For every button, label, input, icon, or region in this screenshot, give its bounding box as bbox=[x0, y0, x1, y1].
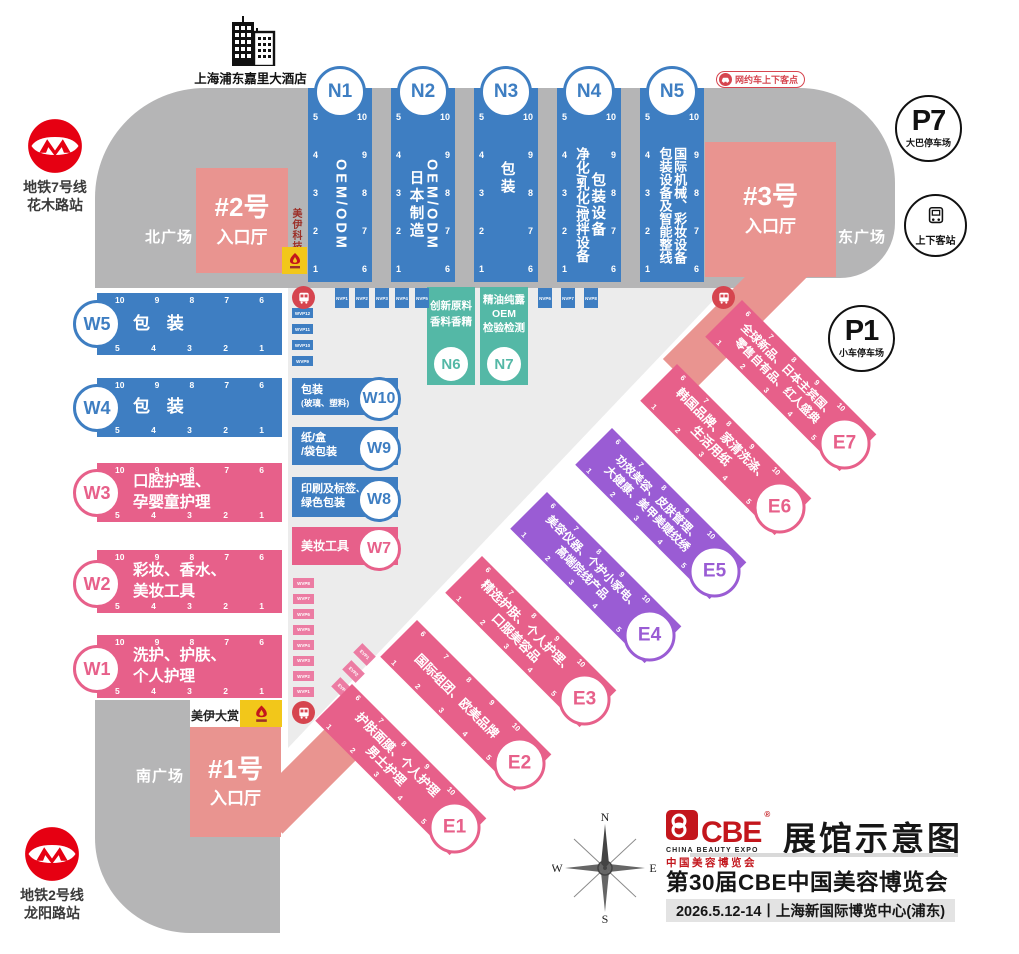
shuttle-stop: WVP9 bbox=[292, 356, 313, 366]
hall-W1-badge: W1 bbox=[73, 645, 121, 693]
bay-number: 7 bbox=[224, 380, 229, 390]
bay-number: 1 bbox=[259, 510, 264, 520]
shuttle-stop: NVP8 bbox=[584, 288, 598, 308]
cbe-wordmark: CBE bbox=[701, 820, 761, 846]
shuttle-stop: WVP5 bbox=[293, 625, 314, 635]
hall-W5: 109876 54321 包 装 bbox=[97, 293, 282, 355]
bay-number: 5 bbox=[115, 425, 120, 435]
entrance-hall-2: #2号 入口厅 bbox=[196, 168, 288, 273]
hall-E5-category: 功效美容、皮肤管理、 bbox=[601, 443, 713, 555]
hall-N6-badge: N6 bbox=[432, 345, 470, 383]
south-square-label: 南广场 bbox=[136, 765, 184, 786]
hall-E1-category: 护肤面膜、个人护理 bbox=[341, 698, 454, 811]
entrance-hall-1: #1号 入口厅 bbox=[190, 727, 281, 837]
hall-E4-badge: E4 bbox=[624, 610, 676, 662]
bay-number: 6 bbox=[259, 552, 264, 562]
car-icon bbox=[719, 73, 732, 86]
meiyi-logo bbox=[240, 700, 282, 727]
shuttle-stop: NVP5 bbox=[415, 288, 429, 308]
hall-W9-badge: W9 bbox=[357, 427, 401, 471]
p1-label: 小车停车场 bbox=[839, 346, 884, 359]
entrance-1-label: 入口厅 bbox=[210, 784, 261, 809]
hall-N2-category: 日本制造 bbox=[407, 170, 422, 240]
hall-E7-badge: E7 bbox=[819, 418, 871, 470]
metro-line2-station: 地铁2号线 龙阳路站 bbox=[0, 826, 107, 922]
hall-W1: 109876 54321 洗护、护肤、 个人护理 bbox=[97, 635, 282, 698]
hotel-label: 上海浦东嘉里大酒店 bbox=[188, 68, 313, 87]
metro-line7-station: 地铁7号线 花木路站 bbox=[0, 118, 110, 214]
bay-number: 7 bbox=[224, 465, 229, 475]
parking-p1: P1 小车停车场 bbox=[828, 305, 895, 372]
hall-W10-category: (玻璃、塑料) bbox=[301, 398, 349, 409]
north-shuttle-stops: NVP1NVP2NVP3NVP4NVP5 bbox=[335, 288, 429, 308]
bay-number: 1 bbox=[259, 343, 264, 353]
hall-W3-badge: W3 bbox=[73, 469, 121, 517]
hall-W3-category: 口腔护理、 bbox=[133, 472, 211, 493]
rideshare-label: 网约车上下客点 bbox=[735, 73, 798, 86]
cbe-logo: CBE ® CHINA BEAUTY EXPO 中国美容博览会 bbox=[666, 810, 776, 870]
bay-number: 5 bbox=[562, 112, 567, 122]
bay-number: 10 bbox=[606, 112, 616, 122]
entrance-hall-3: #3号 入口厅 bbox=[705, 142, 836, 277]
hall-W4-category: 包 装 bbox=[133, 396, 190, 419]
hall-N2-category: OEM/ODM bbox=[424, 159, 439, 251]
bay-number: 5 bbox=[645, 112, 650, 122]
rideshare-dropoff-badge: 网约车上下客点 bbox=[716, 71, 805, 88]
shuttle-stop: NVP1 bbox=[335, 288, 349, 308]
hall-N1-category: OEM/ODM bbox=[332, 159, 347, 251]
shuttle-stop: NVP4 bbox=[395, 288, 409, 308]
hall-E7-category: 零售自有品、红人盛典 bbox=[720, 325, 832, 437]
shuttle-stop: WVP2 bbox=[293, 671, 314, 681]
hall-N5-category: 国际机械、彩妆设备 bbox=[673, 147, 687, 264]
bay-number: 6 bbox=[259, 380, 264, 390]
metro2-station-label: 龙阳路站 bbox=[24, 905, 80, 923]
shuttle-stop: NVP6 bbox=[538, 288, 552, 308]
shuttle-stop: WVP1 bbox=[293, 687, 314, 697]
venue-map: #2号 入口厅 #3号 入口厅 #1号 入口厅 北广场 东广场 南广场 bbox=[0, 0, 1019, 954]
shuttle-stop: NVP3 bbox=[375, 288, 389, 308]
bay-number: 10 bbox=[115, 637, 124, 647]
hall-N4-category: 净化/乳化/搅拌设备 bbox=[574, 147, 588, 263]
hall-W2-badge: W2 bbox=[73, 560, 121, 608]
bay-number: 1 bbox=[479, 264, 484, 274]
shuttle-stop: WVP3 bbox=[293, 656, 314, 666]
hall-N6-category: 香料香精 bbox=[427, 315, 475, 331]
hall-N7-category: 检验检测 bbox=[480, 321, 528, 335]
metro2-line-label: 地铁2号线 bbox=[20, 887, 84, 905]
west-shuttle-stops-lower: WVP8WVP7WVP6WVP5WVP4WVP3WVP2WVP1 bbox=[293, 578, 314, 697]
title-underline bbox=[690, 853, 958, 857]
hall-W4-badge: W4 bbox=[73, 384, 121, 432]
hall-W2-category: 彩妆、香水、 bbox=[133, 561, 226, 582]
bay-number: 10 bbox=[357, 112, 367, 122]
hall-N7-category: 精油纯露 bbox=[480, 293, 528, 307]
hall-N6: 创新原料 香料香精 N6 bbox=[427, 287, 475, 385]
metro-logo-icon bbox=[27, 118, 83, 179]
metro7-station-label: 花木路站 bbox=[27, 197, 83, 215]
p7-label: 大巴停车场 bbox=[906, 136, 951, 149]
entrance-3-number: #3号 bbox=[743, 182, 798, 212]
south-concourse-notch bbox=[95, 700, 190, 740]
bay-number: 5 bbox=[115, 686, 120, 696]
hall-W10-category: 包装 bbox=[301, 384, 349, 398]
bay-number: 8 bbox=[189, 380, 194, 390]
hall-N7-badge: N7 bbox=[485, 345, 523, 383]
shuttle-stop: WVP12 bbox=[292, 308, 313, 318]
hall-W1-category: 洗护、护肤、 bbox=[133, 646, 226, 667]
bay-number: 10 bbox=[115, 465, 124, 475]
hall-N4-category: 包装设备 bbox=[589, 172, 604, 238]
bay-number: 5 bbox=[313, 112, 318, 122]
bay-number: 8 bbox=[189, 295, 194, 305]
hall-W3-category: 孕婴童护理 bbox=[133, 493, 211, 514]
hall-N3-badge: N3 bbox=[480, 66, 532, 118]
hall-W9-category: 纸/盒 bbox=[301, 432, 337, 446]
meiyi-tech-label: 美伊科技 bbox=[288, 208, 303, 252]
shuttle-stop: WVP6 bbox=[293, 609, 314, 619]
bay-number: 10 bbox=[115, 380, 124, 390]
hall-E4-category: 高端院线产品 bbox=[525, 517, 637, 629]
hall-E6-category: 韩国品牌、家清洗涤、 bbox=[666, 378, 779, 491]
entrance-3-label: 入口厅 bbox=[745, 212, 796, 237]
bay-number: 5 bbox=[396, 112, 401, 122]
cbe-registered-mark: ® bbox=[764, 810, 770, 819]
date-venue-bar: 2026.5.12-14丨上海新国际博览中心(浦东) bbox=[666, 899, 955, 922]
shuttle-stop: WVP4 bbox=[293, 640, 314, 650]
hall-E5-badge: E5 bbox=[689, 546, 741, 598]
north-shuttle-stops-right: NVP6NVP7NVP8 bbox=[538, 288, 598, 308]
shuttle-stop: EVP2 bbox=[342, 660, 365, 683]
hall-N2-badge: N2 bbox=[397, 66, 449, 118]
east-square-label: 东广场 bbox=[838, 226, 886, 247]
hall-N1-badge: N1 bbox=[314, 66, 366, 118]
hall-W7-category: 美妆工具 bbox=[301, 539, 349, 554]
bus-stop-icon bbox=[292, 701, 315, 724]
hall-E3-category: 精选护肤、个人护理、 bbox=[471, 570, 584, 683]
dropoff-label: 上下客站 bbox=[916, 232, 956, 247]
cbe-logo-icon bbox=[666, 810, 698, 845]
bay-number: 5 bbox=[115, 343, 120, 353]
bay-number: 6 bbox=[259, 295, 264, 305]
north-square-label: 北广场 bbox=[145, 226, 193, 247]
bus-stop-icon bbox=[712, 286, 735, 309]
hall-E6-badge: E6 bbox=[754, 482, 806, 534]
hall-E2-category: 国际组团、欧美品牌 bbox=[400, 640, 513, 753]
hall-E7-category: 全球新品、日本主宾国、 bbox=[731, 315, 843, 427]
bay-number: 10 bbox=[115, 552, 124, 562]
bay-number: 5 bbox=[479, 112, 484, 122]
bay-number: 5 bbox=[115, 601, 120, 611]
bay-number: 10 bbox=[689, 112, 699, 122]
hall-W8-badge: W8 bbox=[357, 478, 401, 522]
hall-E4-category: 美容仪器、个护小家电、 bbox=[536, 507, 648, 619]
shuttle-stop: WVP7 bbox=[293, 594, 314, 604]
hall-E5-category: 大健康、美甲美睫纹绣 bbox=[590, 453, 702, 565]
bay-number: 10 bbox=[523, 112, 533, 122]
bay-number: 1 bbox=[259, 601, 264, 611]
bay-number: 1 bbox=[259, 686, 264, 696]
compass-e: E bbox=[649, 861, 656, 875]
bus-stop-icon bbox=[292, 286, 315, 309]
hall-N3-category: 包装 bbox=[498, 161, 513, 196]
shuttle-stop: WVP10 bbox=[292, 340, 313, 350]
bay-number: 5 bbox=[115, 510, 120, 520]
bay-number: 7 bbox=[528, 226, 533, 236]
hotel-icon bbox=[218, 16, 276, 66]
hall-W2: 109876 54321 彩妆、香水、 美妆工具 bbox=[97, 550, 282, 613]
compass-n: N bbox=[601, 812, 610, 824]
hall-N7-category: OEM bbox=[480, 307, 528, 321]
bay-number: 2 bbox=[223, 510, 228, 520]
hall-E2-badge: E2 bbox=[494, 738, 546, 790]
hall-E1-badge: E1 bbox=[429, 802, 481, 854]
expo-title: 第30届CBE中国美容博览会 bbox=[666, 865, 948, 897]
meiyi-award-label: 美伊大赏 bbox=[191, 707, 239, 724]
entrance-2-label: 入口厅 bbox=[217, 223, 268, 248]
metro-logo-icon bbox=[24, 826, 80, 887]
hall-N5-category: 包装设备及智能整线 bbox=[658, 147, 672, 264]
hall-W4: 109876 54321 包 装 bbox=[97, 378, 282, 437]
bay-number: 6 bbox=[528, 264, 533, 274]
bay-number: 2 bbox=[223, 425, 228, 435]
bay-number: 6 bbox=[259, 465, 264, 475]
hall-W7-badge: W7 bbox=[357, 527, 401, 571]
hall-W9-category: /袋包装 bbox=[301, 446, 337, 460]
meiyi-logo bbox=[282, 247, 307, 274]
bay-number: 10 bbox=[115, 295, 124, 305]
hall-N4-badge: N4 bbox=[563, 66, 615, 118]
west-shuttle-stops-upper: WVP12WVP11WVP10WVP9 bbox=[292, 308, 313, 366]
hall-W10-badge: W10 bbox=[357, 377, 401, 421]
p7-code: P7 bbox=[912, 108, 945, 136]
hall-W5-category: 包 装 bbox=[133, 313, 190, 336]
bay-number: 7 bbox=[224, 295, 229, 305]
hall-W2-category: 美妆工具 bbox=[133, 582, 226, 603]
bay-number: 2 bbox=[223, 343, 228, 353]
compass-w: W bbox=[552, 861, 563, 875]
hall-W1-category: 个人护理 bbox=[133, 667, 226, 688]
parking-p7: P7 大巴停车场 bbox=[895, 95, 962, 162]
bay-number: 2 bbox=[479, 226, 484, 236]
dropoff-station: 上下客站 bbox=[904, 194, 967, 257]
bay-number: 6 bbox=[259, 637, 264, 647]
shuttle-stop: WVP11 bbox=[292, 324, 313, 334]
metro7-line-label: 地铁7号线 bbox=[23, 179, 87, 197]
compass-s: S bbox=[602, 912, 609, 924]
hall-N7: 精油纯露 OEM 检验检测 N7 bbox=[480, 287, 528, 385]
hall-E3-category: 口服美容品 bbox=[459, 581, 572, 694]
shuttle-stop: NVP2 bbox=[355, 288, 369, 308]
shuttle-stop: WVP8 bbox=[293, 578, 314, 588]
shuttle-bus-icon bbox=[925, 205, 947, 232]
hall-N6-category: 创新原料 bbox=[427, 299, 475, 315]
entrance-1-number: #1号 bbox=[208, 755, 263, 785]
shuttle-stop: NVP7 bbox=[561, 288, 575, 308]
hall-E3-badge: E3 bbox=[559, 674, 611, 726]
compass-rose: N S W E bbox=[552, 812, 658, 924]
hall-E6-category: 生活用纸 bbox=[654, 389, 767, 502]
hall-W3: 109876 54321 口腔护理、 孕婴童护理 bbox=[97, 463, 282, 522]
hall-N5-badge: N5 bbox=[646, 66, 698, 118]
entrance-2-number: #2号 bbox=[215, 193, 270, 223]
hall-W5-badge: W5 bbox=[73, 300, 121, 348]
p1-code: P1 bbox=[845, 318, 878, 346]
bay-number: 10 bbox=[440, 112, 450, 122]
bay-number: 1 bbox=[259, 425, 264, 435]
